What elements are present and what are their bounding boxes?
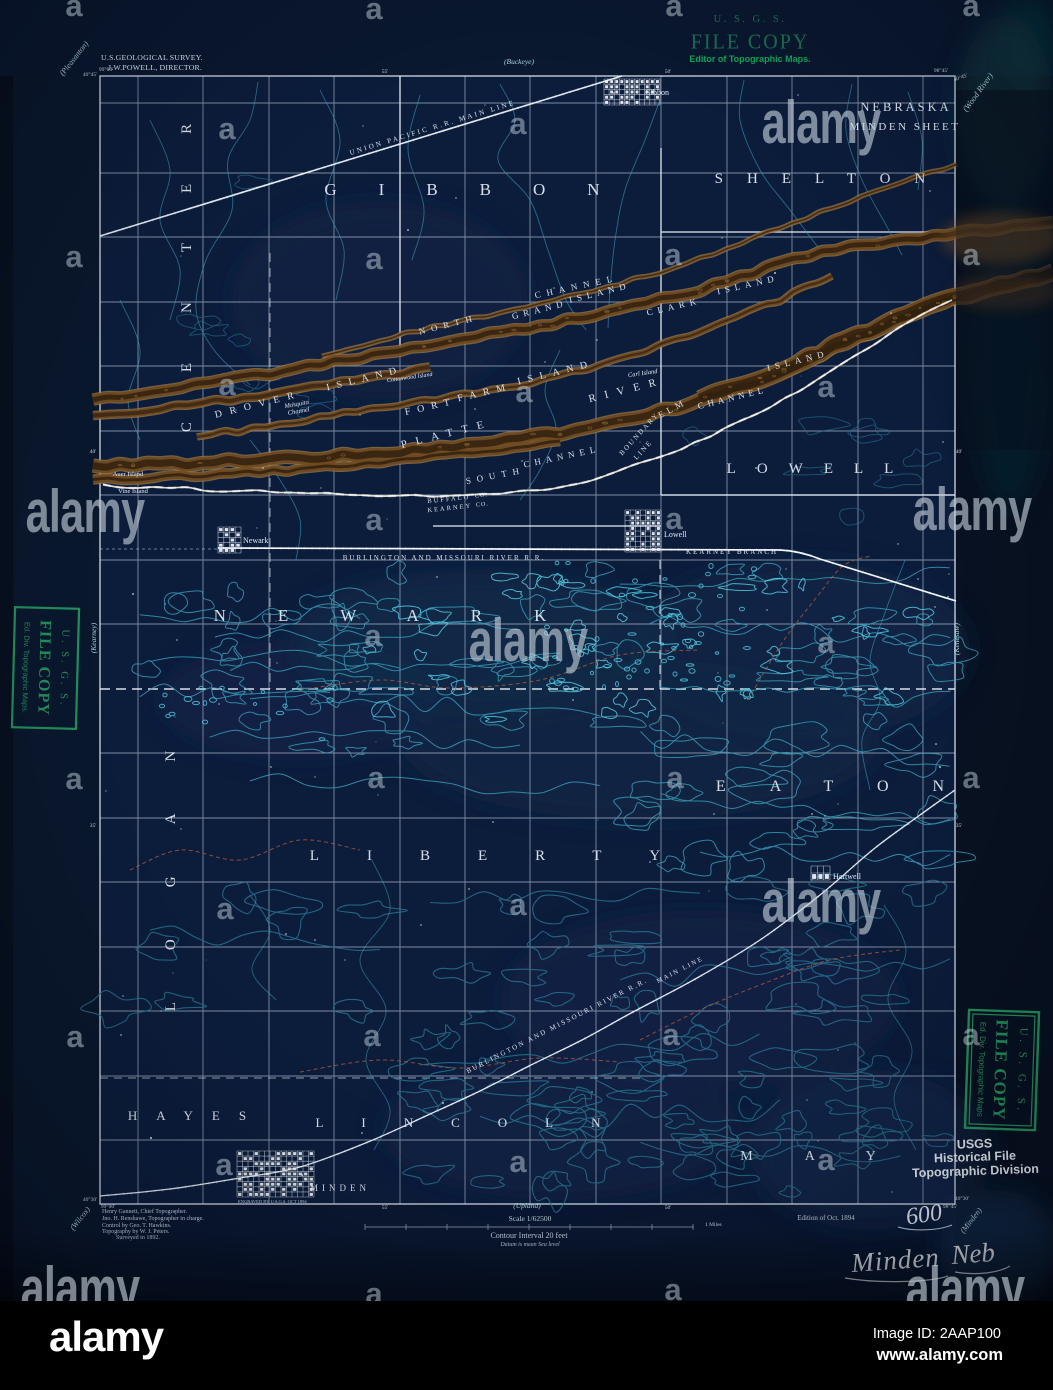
svg-text:a: a — [817, 369, 835, 404]
svg-text:a: a — [215, 1147, 233, 1182]
svg-text:a: a — [962, 1017, 980, 1052]
svg-text:alamy: alamy — [762, 869, 882, 936]
svg-text:alamy: alamy — [49, 1313, 165, 1360]
svg-text:a: a — [666, 760, 684, 795]
svg-text:a: a — [515, 374, 533, 409]
svg-text:a: a — [65, 761, 83, 796]
svg-text:a: a — [962, 237, 980, 272]
svg-text:a: a — [817, 625, 835, 660]
svg-text:a: a — [665, 0, 683, 23]
svg-text:a: a — [367, 760, 385, 795]
svg-text:a: a — [65, 0, 83, 23]
svg-text:Image ID: 2AAP100: Image ID: 2AAP100 — [873, 1326, 1001, 1342]
svg-text:a: a — [509, 106, 527, 141]
svg-text:a: a — [365, 0, 383, 26]
svg-text:a: a — [962, 0, 980, 23]
svg-text:a: a — [817, 1142, 835, 1177]
svg-text:alamy: alamy — [913, 477, 1033, 544]
svg-text:a: a — [218, 111, 236, 146]
svg-text:a: a — [218, 367, 236, 402]
svg-text:www.alamy.com: www.alamy.com — [875, 1346, 1003, 1364]
svg-text:a: a — [509, 887, 527, 922]
svg-text:a: a — [66, 1019, 84, 1054]
svg-text:a: a — [216, 891, 234, 926]
svg-text:a: a — [65, 239, 83, 274]
svg-text:a: a — [664, 237, 682, 272]
svg-text:alamy: alamy — [26, 479, 146, 546]
svg-text:a: a — [364, 618, 382, 653]
svg-text:a: a — [365, 241, 383, 276]
svg-text:a: a — [365, 502, 383, 537]
svg-text:a: a — [363, 1018, 381, 1053]
svg-text:a: a — [662, 1017, 680, 1052]
svg-text:alamy: alamy — [762, 90, 882, 157]
svg-text:a: a — [509, 1144, 527, 1179]
svg-text:a: a — [665, 501, 683, 536]
svg-text:a: a — [962, 760, 980, 795]
svg-text:alamy: alamy — [469, 608, 589, 675]
